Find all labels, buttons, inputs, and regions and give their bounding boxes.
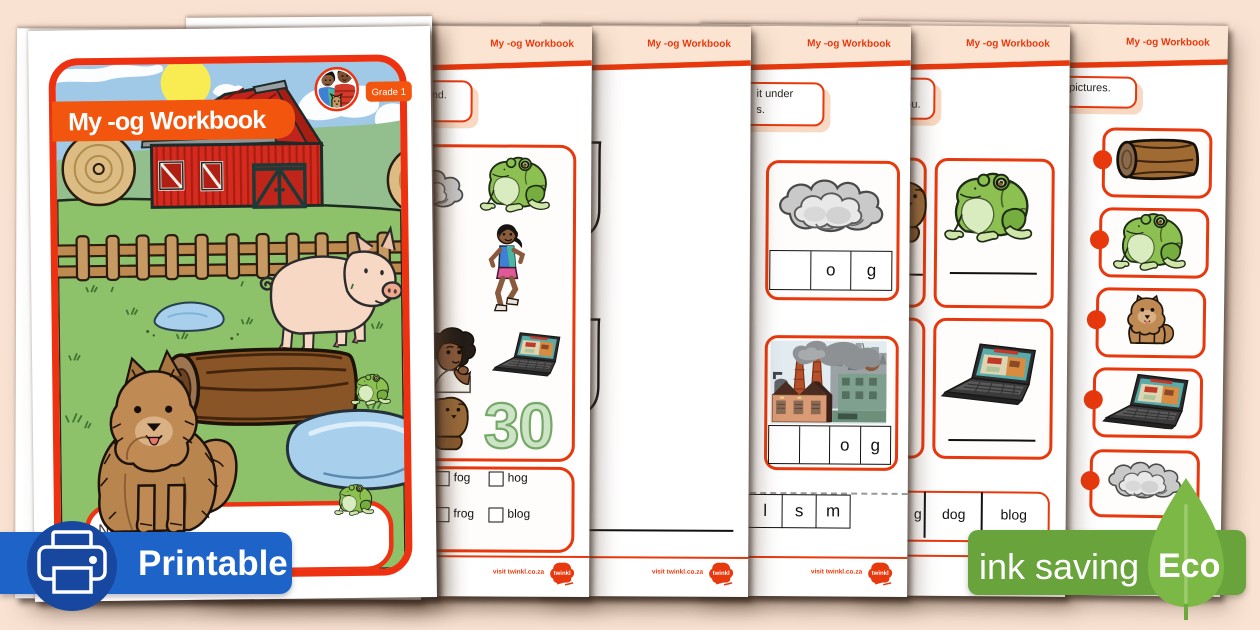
svg-text:My -og Workbook: My -og Workbook: [68, 106, 266, 136]
svg-text:My -og Workbook: My -og Workbook: [966, 38, 1050, 50]
svg-text:My -og Workbook: My -og Workbook: [1126, 37, 1210, 49]
svg-text:My -og Workbook: My -og Workbook: [807, 38, 891, 50]
svg-text:My -og Workbook: My -og Workbook: [490, 38, 574, 49]
svg-text:Grade 1: Grade 1: [372, 87, 406, 98]
